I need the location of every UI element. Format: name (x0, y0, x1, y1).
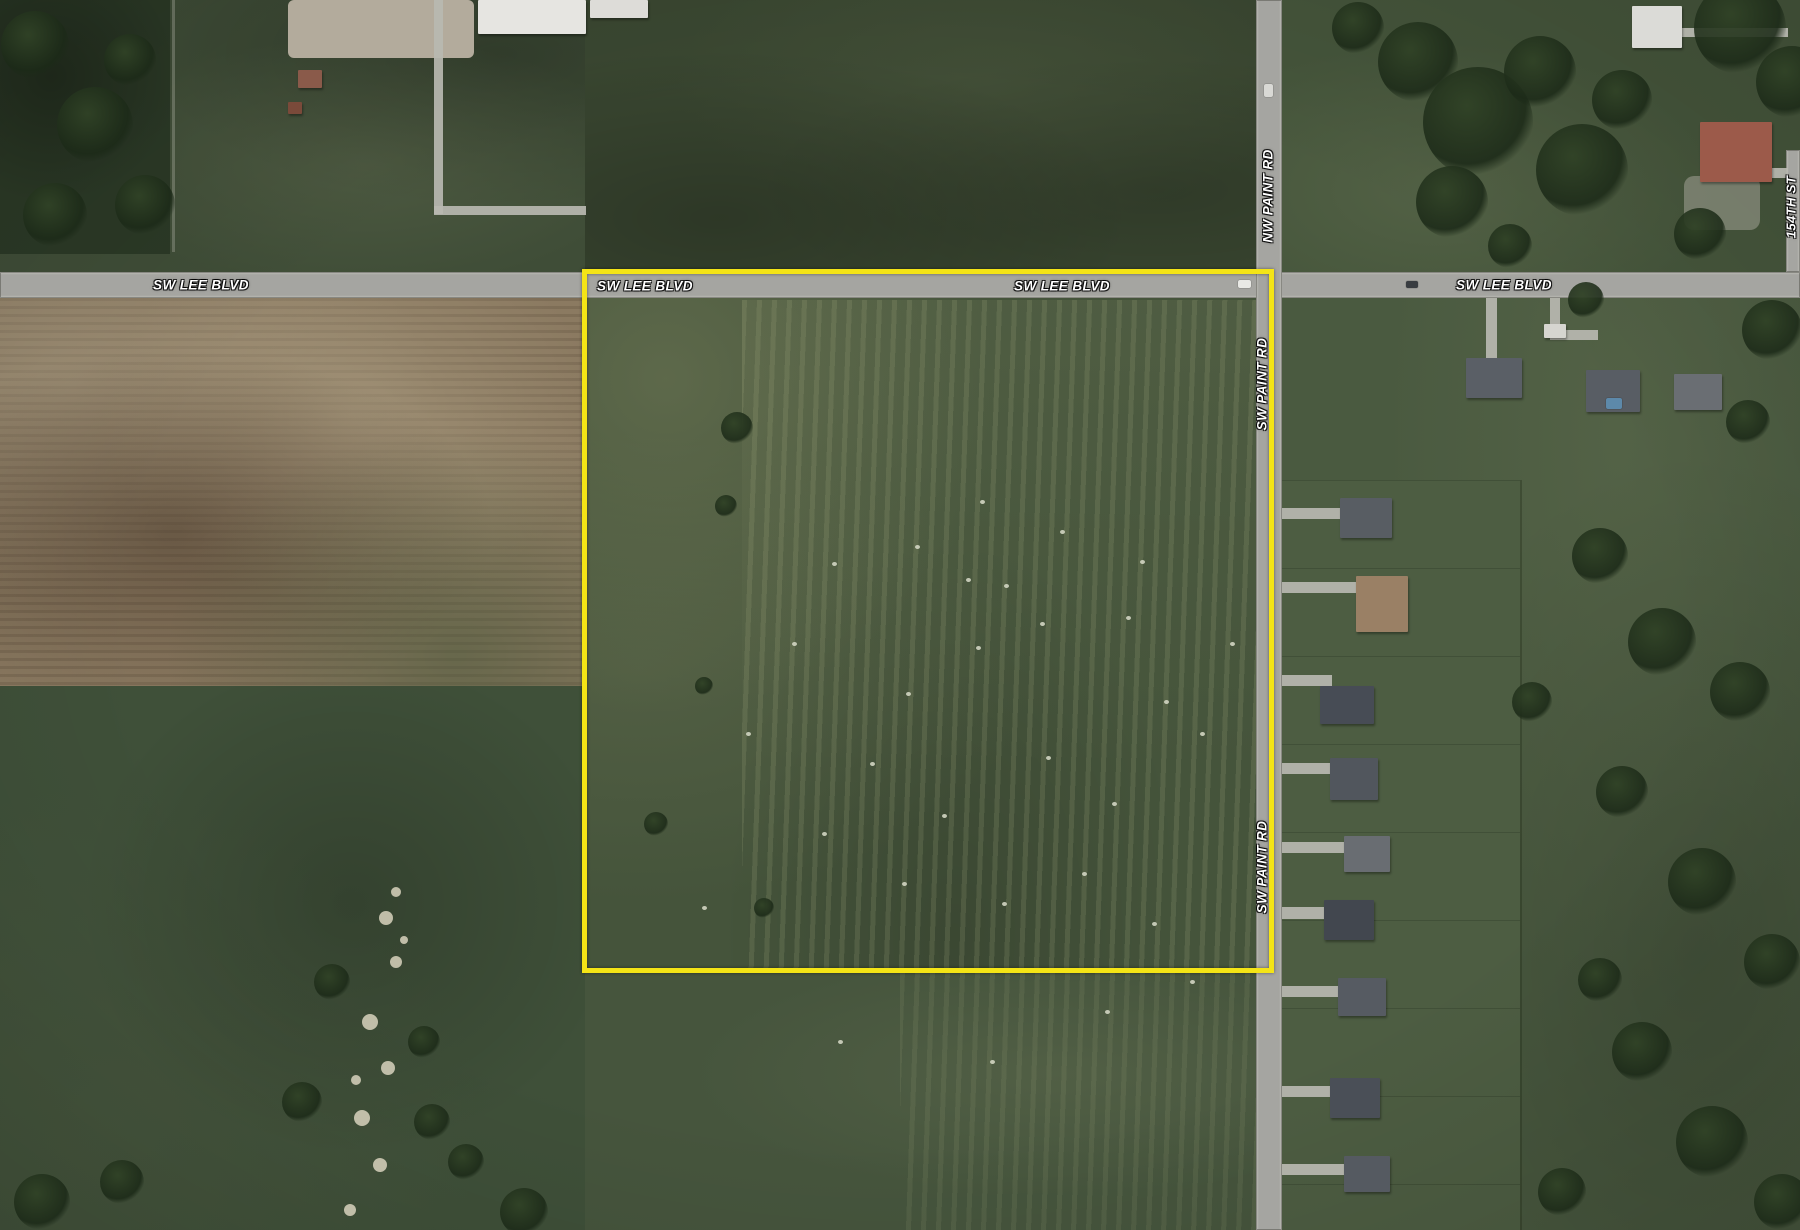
tree (115, 175, 175, 235)
tree (1568, 282, 1604, 318)
house (1466, 358, 1522, 398)
tree (282, 1082, 322, 1122)
house (1344, 1156, 1390, 1192)
shed (298, 70, 322, 88)
hay-bale-dot (1190, 980, 1195, 984)
driveway (1282, 763, 1332, 774)
house (1330, 758, 1378, 800)
driveway (1486, 298, 1497, 360)
tree (1674, 208, 1726, 260)
tree (500, 1188, 548, 1230)
tree (1504, 36, 1576, 108)
vehicle (1406, 281, 1418, 288)
field-north-pasture (585, 0, 1256, 272)
parcel-boundary-outline (582, 269, 1274, 973)
tree (1578, 958, 1622, 1002)
industrial-building (590, 0, 648, 18)
tree (448, 1144, 484, 1180)
road-label-sw-lee-blvd-3: SW LEE BLVD (1014, 279, 1110, 294)
driveway (1282, 1164, 1346, 1175)
vehicle (1264, 84, 1273, 97)
gravel-pad (288, 0, 474, 58)
tree (414, 1104, 450, 1140)
tree (1488, 224, 1532, 268)
creek-sandbar (362, 1014, 378, 1030)
mowing-streaks-south (900, 970, 1256, 1230)
house (1320, 686, 1374, 724)
road-label-sw-lee-blvd-1: SW LEE BLVD (153, 278, 249, 293)
tree (408, 1026, 440, 1058)
tree (1416, 166, 1488, 238)
tree (1726, 400, 1770, 444)
tree (14, 1174, 70, 1230)
road-label-sw-lee-blvd-4: SW LEE BLVD (1456, 278, 1552, 293)
creek-sandbar (390, 956, 402, 968)
driveway (1282, 1086, 1332, 1097)
road-label-sw-lee-blvd-2: SW LEE BLVD (597, 279, 693, 294)
tree (57, 87, 133, 163)
driveway (434, 0, 443, 214)
tree (1, 11, 69, 79)
outbuilding (1544, 324, 1566, 338)
tree (1596, 766, 1648, 818)
tree (1538, 1168, 1586, 1216)
tree (104, 34, 156, 86)
red-roof-house (1700, 122, 1772, 182)
road-label-nw-paint-rd: NW PAINT RD (1261, 149, 1276, 242)
tree (314, 964, 350, 1000)
aerial-map-canvas[interactable]: SW LEE BLVD SW LEE BLVD SW LEE BLVD SW L… (0, 0, 1800, 1230)
driveway (1282, 842, 1346, 853)
tree (100, 1160, 144, 1204)
field-southwest-pasture (0, 686, 585, 1230)
tree (1742, 300, 1800, 360)
hay-bale-dot (838, 1040, 843, 1044)
driveway (434, 206, 586, 215)
house (1344, 836, 1390, 872)
house (1324, 900, 1374, 940)
industrial-building (478, 0, 586, 34)
tree (1676, 1106, 1748, 1178)
tree (1628, 608, 1696, 676)
creek-sandbar (391, 887, 401, 897)
tree (1536, 124, 1628, 216)
driveway (1282, 986, 1340, 997)
tree (1710, 662, 1770, 722)
tree (1512, 682, 1552, 722)
house (1674, 374, 1722, 410)
creek-sandbar (373, 1158, 387, 1172)
creek-sandbar (351, 1075, 361, 1085)
hay-bale-dot (1105, 1010, 1110, 1014)
house (1356, 576, 1408, 632)
tree (1612, 1022, 1672, 1082)
tree (1744, 934, 1800, 990)
swimming-pool (1606, 398, 1622, 409)
house (1338, 978, 1386, 1016)
plowed-tan-field (0, 298, 585, 686)
tree (23, 183, 87, 247)
tree (1592, 70, 1652, 130)
tree (1332, 2, 1384, 54)
driveway (1282, 675, 1332, 686)
driveway (1282, 508, 1342, 519)
house (1330, 1078, 1380, 1118)
road-label-154th-st: 154TH ST (1784, 176, 1799, 238)
road-label-sw-paint-rd-2: SW PAINT RD (1255, 821, 1270, 914)
tree (1572, 528, 1628, 584)
tree (1668, 848, 1736, 916)
house (1340, 498, 1392, 538)
fence-line (1520, 480, 1522, 1230)
creek-sandbar (354, 1110, 370, 1126)
shed (288, 102, 302, 114)
hay-bale-dot (990, 1060, 995, 1064)
road-label-sw-paint-rd-1: SW PAINT RD (1255, 338, 1270, 431)
creek-sandbar (400, 936, 408, 944)
white-roof-house (1632, 6, 1682, 48)
creek-sandbar (344, 1204, 356, 1216)
driveway (1282, 582, 1358, 593)
creek-sandbar (379, 911, 393, 925)
creek-sandbar (381, 1061, 395, 1075)
